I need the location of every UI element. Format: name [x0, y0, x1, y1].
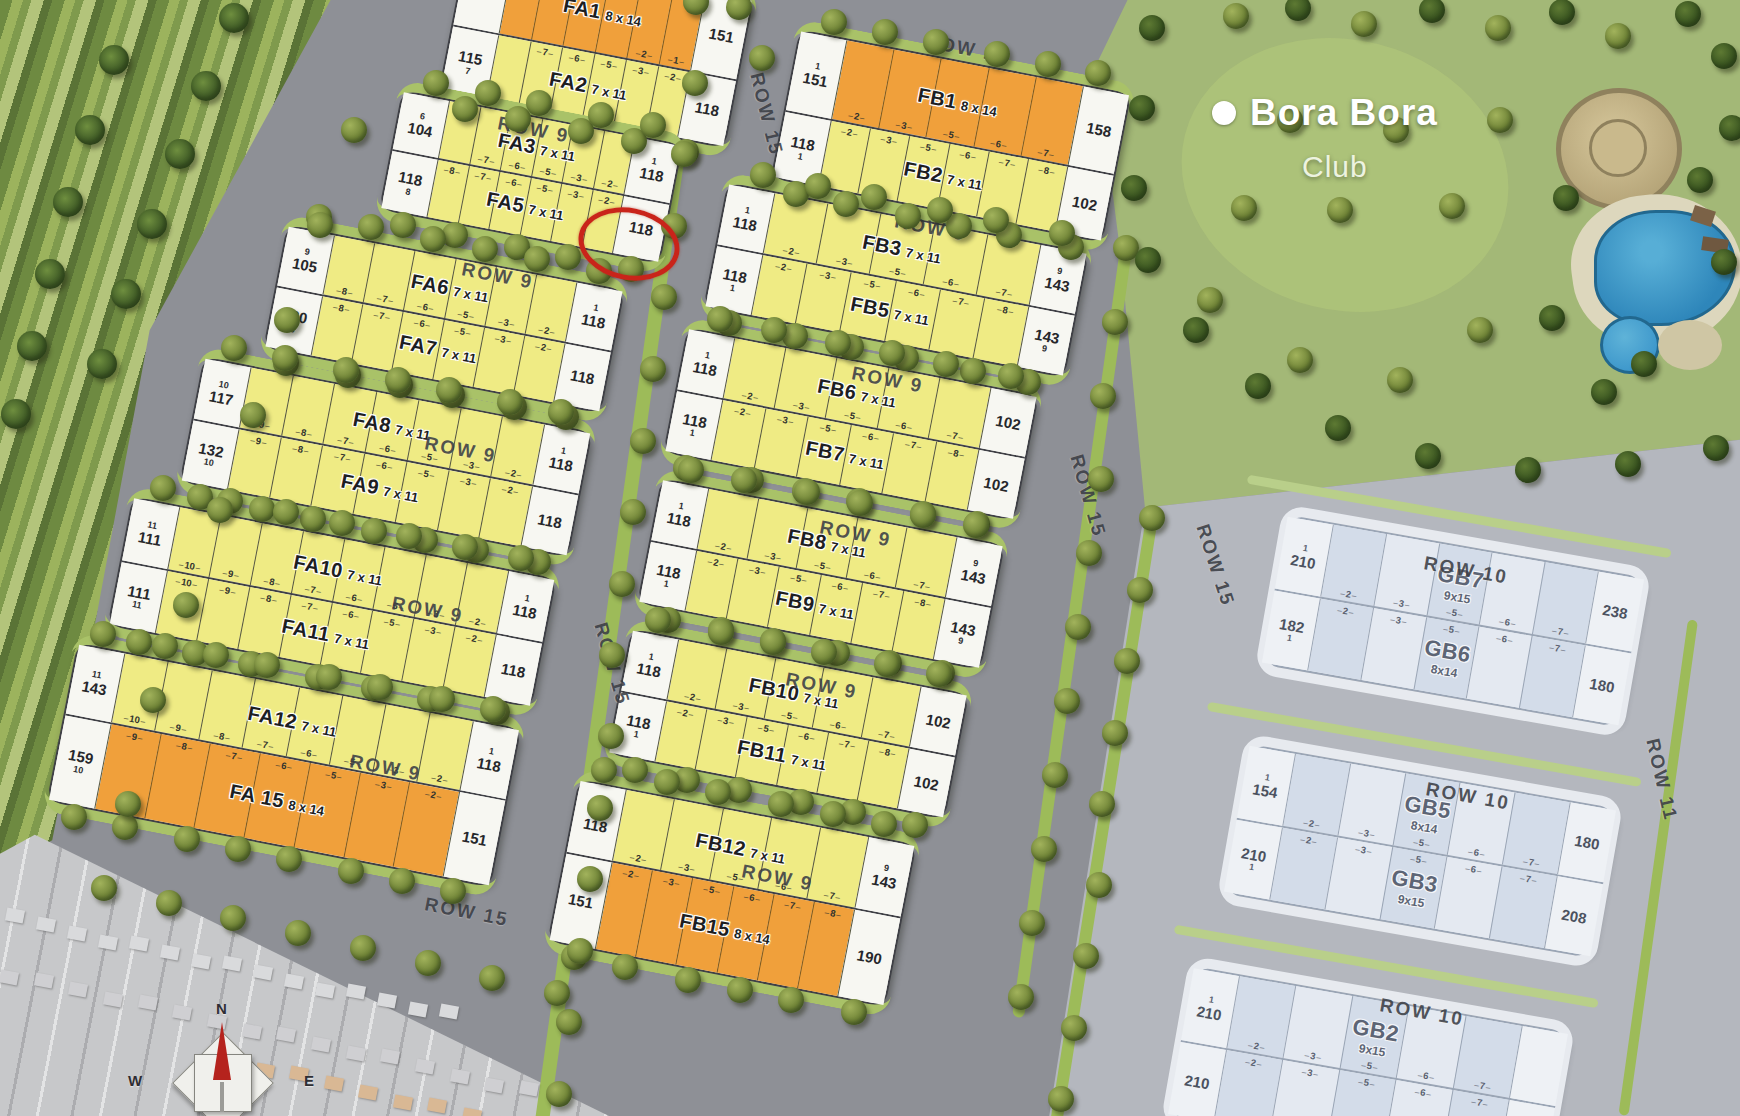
tree-icon: [1089, 791, 1115, 817]
tree-icon: [820, 801, 846, 827]
tree-icon: [1687, 167, 1713, 193]
tree-icon: [926, 661, 952, 687]
tree-icon: [750, 162, 776, 188]
tree-icon: [150, 475, 176, 501]
lot-number: 180: [1573, 832, 1600, 852]
tree-icon: [1591, 379, 1617, 405]
tree-icon: [442, 222, 468, 248]
lot-number-small: 6: [1478, 629, 1532, 649]
lot-number-small: 7: [529, 44, 562, 61]
lot-number-small: 1: [678, 501, 685, 511]
lot-number-small: 1: [663, 580, 670, 590]
tree-icon: [1139, 15, 1165, 41]
tree-icon: [1031, 836, 1057, 862]
lot-number-small: 7: [892, 435, 936, 454]
tree-icon: [1121, 175, 1147, 201]
tree-icon: [112, 814, 138, 840]
lot-number-small: 1: [648, 652, 655, 662]
lot-number-small: 9: [973, 559, 980, 569]
tree-icon: [567, 938, 593, 964]
tree-icon: [546, 1081, 572, 1107]
lot-number-small: 6: [731, 888, 773, 906]
lot-number-small: 5: [691, 880, 733, 898]
tree-icon: [1035, 51, 1061, 77]
compass-north-needle: [213, 1022, 231, 1080]
palm-tree-icon: [99, 45, 129, 75]
lot-number-small: 1: [1248, 863, 1255, 873]
tree-icon: [1102, 309, 1128, 335]
lot-number-small: 2: [761, 257, 806, 276]
compass-west-label: W: [128, 1072, 142, 1089]
tree-icon: [152, 633, 178, 659]
lot-number: 118: [665, 509, 692, 529]
lot-number: 154: [1251, 781, 1278, 801]
tree-icon: [249, 496, 275, 522]
lot-number-small: 2: [523, 338, 565, 356]
lot: 5: [1326, 1070, 1395, 1116]
tree-icon: [963, 512, 989, 538]
lot-number-small: 5: [405, 464, 448, 483]
tree-icon: [707, 306, 733, 332]
tree-icon: [841, 999, 867, 1025]
lot-number: 102: [994, 412, 1022, 432]
tree-icon: [90, 621, 116, 647]
lot-number-small: 6: [819, 577, 862, 596]
tree-icon: [285, 920, 311, 946]
lot-number: 118: [694, 99, 721, 119]
tree-icon: [1042, 762, 1068, 788]
tree-icon: [1139, 505, 1165, 531]
lot-number: 118: [580, 311, 607, 331]
tree-icon: [591, 757, 617, 783]
tree-icon: [358, 214, 384, 240]
lot-number-small: 2: [665, 703, 707, 721]
lot-number: 182: [1278, 616, 1305, 636]
lot-end-right: 1439: [933, 599, 991, 668]
lot-number-small: 2: [453, 629, 495, 648]
tree-icon: [910, 502, 936, 528]
tree-icon: [708, 619, 734, 645]
tree-icon: [423, 70, 449, 96]
tree-icon: [1553, 185, 1579, 211]
lot-number-small: 7: [209, 746, 260, 766]
tree-icon: [1054, 688, 1080, 714]
tree-icon: [338, 858, 364, 884]
lot-number-small: 8: [934, 444, 978, 463]
tree-icon: [1135, 247, 1161, 273]
lot-end-right: 9143: [945, 537, 1003, 606]
lot-number-small: 1: [560, 446, 567, 456]
tree-icon: [1539, 305, 1565, 331]
lot-number: 151: [801, 70, 829, 90]
lot-number-small: 3: [482, 330, 524, 348]
lot-number-small: 3: [447, 472, 490, 491]
tree-icon: [396, 523, 422, 549]
lot-end-right: 118: [520, 486, 578, 555]
tree-icon: [1088, 466, 1114, 492]
tree-icon: [960, 358, 986, 384]
palm-tree-icon: [75, 115, 105, 145]
tree-icon: [727, 977, 753, 1003]
palm-tree-icon: [137, 209, 167, 239]
tree-icon: [1327, 197, 1353, 223]
tree-icon: [526, 90, 552, 116]
lot-number: 143: [1043, 274, 1071, 294]
tree-icon: [1711, 249, 1737, 275]
lot-number: 118: [500, 660, 527, 680]
tree-icon: [1102, 720, 1128, 746]
lot-number-small: 3: [705, 711, 747, 729]
tree-icon: [927, 197, 953, 223]
tree-icon: [1487, 107, 1513, 133]
lot-number: 118: [397, 169, 424, 189]
tree-icon: [115, 791, 141, 817]
club-title: Bora Bora: [1212, 92, 1438, 134]
tree-icon: [587, 795, 613, 821]
lot-end-right: 1118: [532, 425, 590, 494]
lot-number-small: 8: [405, 187, 412, 197]
lot-number: 102: [925, 711, 953, 731]
lot-number-small: 5: [849, 274, 894, 293]
house: [34, 972, 54, 988]
lot-number: 102: [1071, 194, 1099, 214]
tree-icon: [861, 184, 887, 210]
tree-icon: [472, 236, 498, 262]
lot-end-right: 102: [979, 388, 1037, 457]
tree-icon: [415, 950, 441, 976]
tree-icon: [361, 518, 387, 544]
tree-icon: [682, 70, 708, 96]
lot-number-small: 1: [704, 351, 711, 361]
house: [284, 973, 304, 989]
tree-icon: [91, 875, 117, 901]
tree-icon: [651, 284, 677, 310]
lot-number: 104: [406, 120, 434, 140]
lot-number-small: 1: [524, 593, 531, 603]
tree-icon: [276, 846, 302, 872]
block-label: GB29x15: [1348, 1013, 1401, 1061]
lot-number-small: 7: [1500, 869, 1556, 889]
lot-number: 118: [721, 266, 748, 286]
tree-icon: [805, 173, 831, 199]
lot-number-small: 2: [1319, 601, 1373, 621]
tree-icon: [1675, 1, 1701, 27]
lot-number-small: 6: [330, 605, 372, 624]
tree-icon: [760, 629, 786, 655]
tree-icon: [1090, 383, 1116, 409]
tree-icon: [1415, 443, 1441, 469]
lot-number-small: 2: [408, 785, 459, 805]
lot-number-small: 8: [1026, 162, 1067, 180]
tree-icon: [1183, 317, 1209, 343]
lot-number: 111: [126, 583, 152, 603]
lot-number: 143: [80, 678, 108, 698]
tree-icon: [1197, 287, 1223, 313]
tree-icon: [1245, 373, 1271, 399]
lot-number-small: 3: [805, 266, 850, 285]
club-marker-dot: [1212, 101, 1236, 125]
lot-number-small: 3: [1336, 840, 1392, 860]
tree-icon: [1325, 415, 1351, 441]
lot-number: 190: [855, 947, 883, 967]
lot-end-right: 102: [909, 687, 967, 756]
tree-icon: [731, 467, 757, 493]
lot-number-small: 2: [591, 192, 623, 209]
tree-icon: [1127, 577, 1153, 603]
block-label: GB68x14: [1420, 634, 1473, 682]
tree-icon: [272, 345, 298, 371]
lot-end-right: 102: [967, 450, 1025, 519]
tree-icon: [1631, 351, 1657, 377]
lot-number-small: 1: [1264, 773, 1271, 783]
tree-icon: [274, 307, 300, 333]
pool-deck-small: [1658, 320, 1722, 370]
tree-icon: [329, 510, 355, 536]
lot-number-small: 3: [763, 410, 807, 429]
lot-number-small: 1: [689, 429, 696, 439]
tree-icon: [61, 804, 87, 830]
tree-icon: [225, 836, 251, 862]
lot-number-small: 2: [610, 865, 652, 883]
lot-number-small: 6: [258, 756, 309, 776]
lot-number-small: 6: [894, 283, 939, 302]
lot-number-small: 1: [729, 284, 736, 294]
lot-number: 210: [1289, 552, 1316, 572]
palm-tree-icon: [111, 279, 141, 309]
lot-number-small: 7: [987, 154, 1028, 172]
lot-number-small: 5: [529, 180, 561, 197]
tree-icon: [207, 497, 233, 523]
compass-south-needle: [220, 1082, 224, 1112]
lot-number-small: 9: [109, 727, 160, 747]
master-plan-map: 16321151FA18 x 14115776532118FA27 x 1161…: [0, 0, 1740, 1116]
lot-number-small: 9: [237, 432, 280, 451]
lot-number: 180: [1588, 675, 1615, 695]
lot-number-small: 5: [745, 719, 787, 737]
tree-icon: [821, 9, 847, 35]
tree-icon: [475, 80, 501, 106]
lot-number-small: 8: [279, 440, 322, 459]
lot-number-small: 6: [849, 427, 893, 446]
tree-icon: [1086, 872, 1112, 898]
compass-rose: N W E: [126, 1000, 316, 1116]
tree-icon: [174, 826, 200, 852]
tree-icon: [833, 191, 859, 217]
lot-number-small: 6: [786, 727, 828, 745]
tree-icon: [524, 246, 550, 272]
tree-icon: [173, 592, 199, 618]
tree-icon: [300, 506, 326, 532]
tree-icon: [1615, 451, 1641, 477]
lot-number-small: 6: [363, 456, 406, 475]
lot-number: 143: [870, 872, 898, 892]
palm-tree-icon: [1, 399, 31, 429]
lot-number: 117: [208, 388, 235, 408]
lot-number-small: 8: [159, 736, 210, 756]
lot-number-small: 7: [826, 735, 868, 753]
tree-icon: [768, 791, 794, 817]
tree-icon: [577, 866, 603, 892]
tree-icon: [1703, 435, 1729, 461]
lot-number-small: 7: [361, 306, 403, 324]
lot-number: 118: [691, 359, 718, 379]
lot-number-small: 7: [772, 896, 814, 914]
lot-number: 151: [567, 891, 595, 911]
tree-icon: [640, 112, 666, 138]
tree-icon: [933, 351, 959, 377]
tree-icon: [761, 317, 787, 343]
tree-icon: [508, 545, 534, 571]
tree-icon: [588, 102, 614, 128]
lot-number-small: 5: [592, 56, 625, 73]
lot-number-small: 1: [797, 152, 804, 162]
compass-east-label: E: [304, 1072, 314, 1089]
tree-icon: [1719, 115, 1740, 141]
lot-number: 208: [1560, 906, 1587, 926]
lot-number: 118: [681, 411, 708, 431]
tree-icon: [749, 45, 775, 71]
tree-icon: [1073, 943, 1099, 969]
tree-icon: [350, 935, 376, 961]
lot-number: 151: [461, 829, 489, 849]
tree-icon: [156, 890, 182, 916]
tree-icon: [273, 499, 299, 525]
tree-icon: [874, 651, 900, 677]
lot-number-small: 2: [489, 480, 532, 499]
tree-icon: [1515, 457, 1541, 483]
lot-number-small: 1: [1286, 634, 1293, 644]
tree-icon: [1287, 347, 1313, 373]
compass-north-label: N: [216, 1000, 227, 1017]
palm-tree-icon: [35, 259, 65, 289]
lot-number: 158: [1085, 120, 1113, 140]
tree-icon: [1065, 614, 1091, 640]
palm-tree-icon: [53, 187, 83, 217]
lot-number-small: 1: [633, 730, 640, 740]
lot-number-small: 1: [744, 206, 751, 216]
tree-icon: [452, 534, 478, 560]
tree-icon: [440, 878, 466, 904]
tree-icon: [1129, 95, 1155, 121]
lot-number-small: 7: [289, 597, 331, 616]
lot-number-small: 8: [983, 300, 1028, 319]
club-title-text: Bora Bora: [1250, 92, 1438, 134]
tree-icon: [609, 571, 635, 597]
house: [450, 1068, 470, 1084]
lot-number: 118: [475, 755, 502, 775]
lot-number: 151: [707, 26, 735, 46]
tree-icon: [452, 96, 478, 122]
lot-number-small: 3: [560, 186, 592, 203]
lot-number-small: 10: [72, 765, 84, 776]
tree-icon: [923, 29, 949, 55]
tree-icon: [984, 41, 1010, 67]
lot-number: 118: [511, 601, 538, 621]
lot-number-small: 7: [321, 448, 364, 467]
lot-number: 102: [982, 474, 1010, 494]
lot-number-small: 9: [1056, 266, 1063, 276]
lot-number: 118: [569, 367, 596, 387]
lot-number-small: 6: [561, 50, 594, 67]
tree-icon: [140, 687, 166, 713]
tree-icon: [1549, 0, 1575, 25]
tree-icon: [1048, 1086, 1074, 1112]
lot-number-small: 3: [624, 62, 657, 79]
tree-icon: [389, 868, 415, 894]
palm-tree-icon: [87, 349, 117, 379]
lot-number: 238: [1601, 602, 1628, 622]
tree-icon: [1439, 193, 1465, 219]
lot-number-small: 7: [860, 585, 903, 604]
palm-tree-icon: [17, 331, 47, 361]
lot-number-small: 5: [777, 569, 820, 588]
lot-number-small: 2: [695, 553, 738, 572]
lot-number-small: 8: [902, 593, 945, 612]
tree-icon: [895, 203, 921, 229]
tree-icon: [341, 117, 367, 143]
tree-icon: [385, 367, 411, 393]
lot-number-small: 8: [867, 743, 909, 761]
lot-number-small: 2: [1281, 830, 1337, 850]
tree-icon: [505, 106, 531, 132]
lot-number-small: 8: [248, 589, 290, 608]
lot-number: 115: [457, 48, 484, 68]
house: [315, 982, 335, 998]
lot-number: 118: [789, 134, 816, 154]
lot-number-small: 1: [1208, 995, 1215, 1005]
tree-icon: [1467, 317, 1493, 343]
lot-number: 118: [536, 511, 563, 531]
lot-number-small: 5: [806, 419, 850, 438]
lot-number: 118: [732, 214, 759, 234]
tree-icon: [1605, 23, 1631, 49]
lot-number: 118: [655, 561, 682, 581]
lot-number-small: 3: [736, 561, 779, 580]
tree-icon: [654, 769, 680, 795]
lot-number: 210: [1240, 845, 1267, 865]
lot-number-small: 6: [947, 146, 988, 164]
lot-number-small: 7: [464, 67, 471, 77]
lot-number-small: 9: [207, 581, 249, 600]
house: [98, 934, 118, 950]
lot-number: 118: [547, 454, 574, 474]
lot-number-small: 9: [1041, 345, 1048, 355]
lot-number-small: 2: [721, 402, 765, 421]
tree-icon: [1351, 11, 1377, 37]
lot-number-small: 9: [957, 637, 964, 647]
tree-icon: [221, 335, 247, 361]
lot-end-right: 1118: [565, 283, 623, 351]
lot-number-small: 6: [401, 314, 443, 332]
lot-number: 102: [913, 773, 941, 793]
palm-tree-icon: [219, 3, 249, 33]
lot-number-small: 6: [498, 174, 530, 191]
tree-icon: [1231, 195, 1257, 221]
house: [324, 1075, 344, 1091]
tree-icon: [1711, 43, 1737, 69]
lot-number-small: 6: [1446, 859, 1502, 879]
palm-tree-icon: [165, 139, 195, 169]
lot-number-small: 3: [869, 131, 910, 149]
tree-icon: [436, 377, 462, 403]
tree-icon: [825, 330, 851, 356]
lot-number-small: 7: [467, 168, 499, 185]
lot-number-small: 1: [1302, 544, 1309, 554]
lot-number-small: 10: [203, 458, 215, 469]
tree-icon: [1114, 648, 1140, 674]
tree-icon: [1223, 3, 1249, 29]
tree-icon: [1387, 367, 1413, 393]
